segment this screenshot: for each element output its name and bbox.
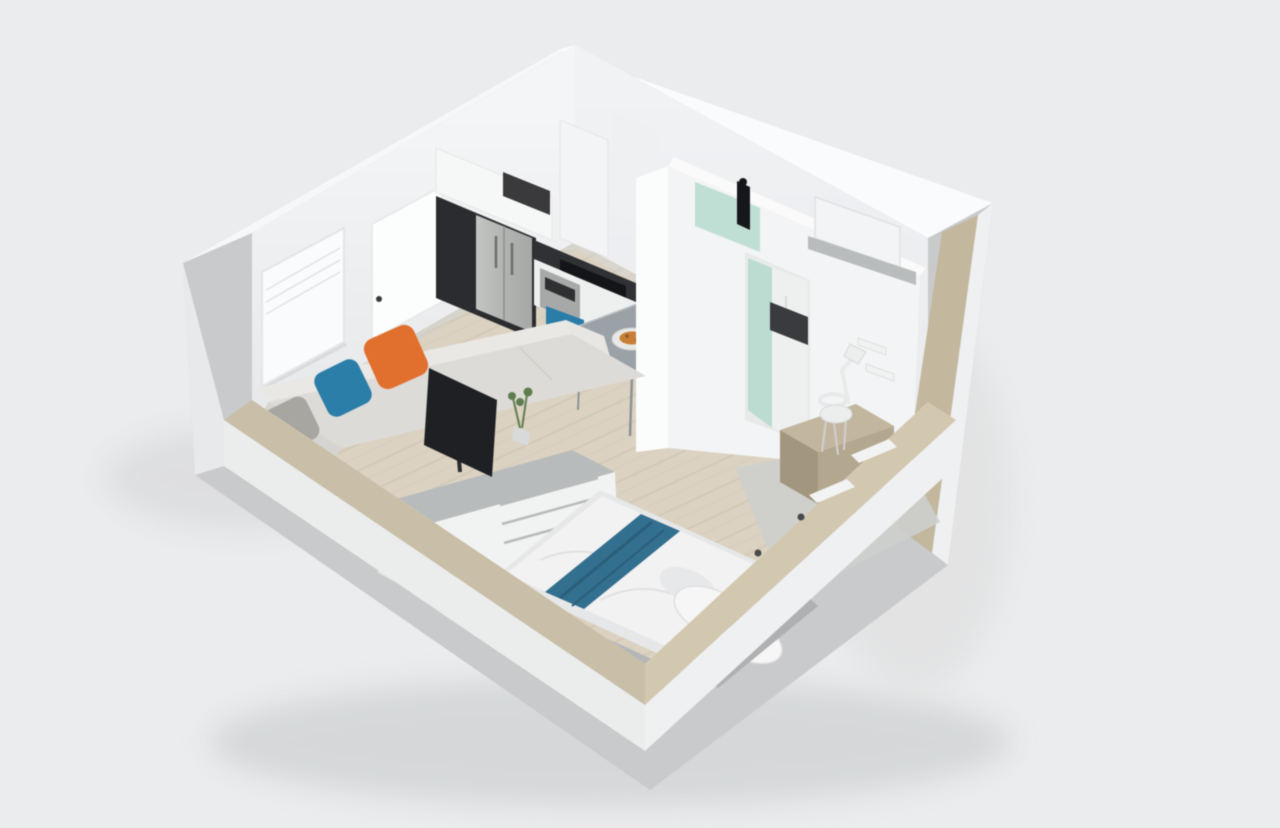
chair-seat [820,405,852,423]
bathroom-side-edge [636,166,668,452]
floorplan-3d-render [0,0,1280,828]
pantry-column [560,120,608,258]
shower-head [739,178,747,186]
apartment-scene [0,0,1280,828]
wall-knob-2 [755,550,762,557]
wall-knob [798,514,805,521]
food-detail [625,334,629,338]
doorway-interior [772,268,808,440]
shower-fixture [737,181,750,230]
shower-glass-edge [748,258,772,428]
door-handle [376,296,382,302]
